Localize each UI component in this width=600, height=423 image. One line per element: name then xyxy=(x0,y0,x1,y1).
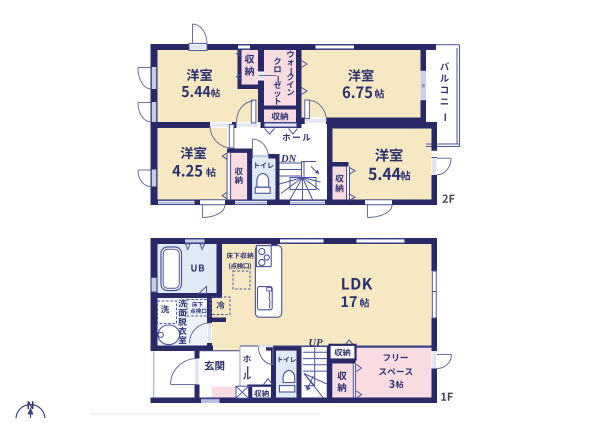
svg-text:DN: DN xyxy=(280,154,297,165)
svg-text:UP: UP xyxy=(309,338,324,349)
